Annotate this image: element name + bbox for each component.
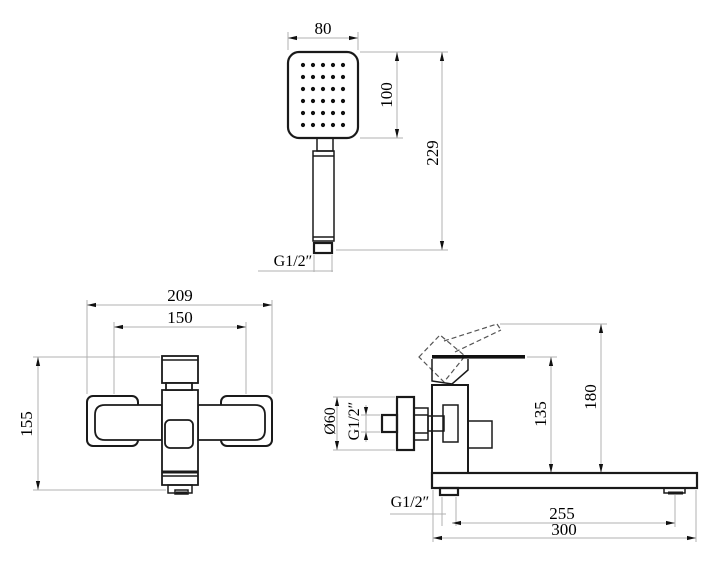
spray-nozzle-dot <box>301 75 305 79</box>
hex-nut <box>414 408 428 440</box>
spray-nozzle-dot <box>301 123 305 127</box>
hose-outlet <box>440 488 458 495</box>
arrowhead <box>549 357 553 366</box>
spray-nozzle-dot <box>341 87 345 91</box>
diverter-button <box>165 420 193 448</box>
arrowhead <box>687 536 696 540</box>
arrowhead <box>335 441 339 450</box>
spray-nozzle-dot <box>341 75 345 79</box>
arrowhead <box>36 481 40 490</box>
spray-nozzle-dot <box>301 87 305 91</box>
spray-nozzle-dot <box>341 111 345 115</box>
spray-nozzle-dot <box>321 87 325 91</box>
technical-drawing-canvas: 80 100 229 G1/2″ <box>0 0 720 567</box>
arrowhead <box>433 536 442 540</box>
spray-nozzle-dot <box>321 111 325 115</box>
side-view: Ø60 G1/2″ 135 180 G1/2″ 255 300 <box>322 324 697 542</box>
spray-nozzle-dot <box>341 123 345 127</box>
front-view-dimensions: 209 150 155 <box>17 286 272 490</box>
dim-overall-length-label: 300 <box>551 520 577 539</box>
arrowhead <box>364 407 368 415</box>
lever-bar-raised <box>444 324 497 341</box>
front-view: 209 150 155 <box>17 286 272 494</box>
spray-nozzle-dot <box>331 87 335 91</box>
arrowhead <box>440 52 444 61</box>
arrowhead <box>114 325 123 329</box>
left-inlet-arm <box>95 405 162 440</box>
spout <box>432 473 697 488</box>
connector-rod <box>428 416 444 431</box>
spray-nozzle-dot <box>321 123 325 127</box>
shower-hose-connector <box>314 243 332 253</box>
arrowhead <box>549 464 553 473</box>
spray-nozzle-dot <box>321 75 325 79</box>
dim-shower-width-label: 80 <box>315 19 332 38</box>
arrowhead <box>237 325 246 329</box>
lever-bar-raised <box>455 330 501 352</box>
dim-front-width-label: 209 <box>167 286 193 305</box>
arrowhead <box>440 241 444 250</box>
arrowhead <box>666 521 675 525</box>
arrowhead <box>335 397 339 406</box>
spray-nozzle-dot <box>311 63 315 67</box>
lever-bar-raised-tip <box>497 324 501 330</box>
spray-nozzle-dot <box>331 99 335 103</box>
mixer-body-side <box>432 385 468 473</box>
inlet-boss <box>443 405 458 442</box>
spray-nozzle-dot <box>341 63 345 67</box>
spray-nozzle-grid <box>301 63 345 127</box>
spray-nozzle-dot <box>311 99 315 103</box>
wall-thread-pipe <box>382 415 397 432</box>
shower-thread-label: G1/2″ <box>274 253 313 270</box>
arrowhead <box>364 432 368 440</box>
spray-nozzle-dot <box>331 111 335 115</box>
wall-flange <box>397 397 414 450</box>
dim-total-height-label: 180 <box>581 384 600 410</box>
arrowhead <box>599 324 603 333</box>
arrowhead <box>599 464 603 473</box>
spray-nozzle-dot <box>311 123 315 127</box>
spray-nozzle-dot <box>311 111 315 115</box>
spray-nozzle-dot <box>341 99 345 103</box>
dim-shower-head-height-label: 100 <box>377 82 396 108</box>
right-inlet-arm <box>198 405 265 440</box>
spray-nozzle-dot <box>311 87 315 91</box>
hand-shower-dimensions: 80 100 229 G1/2″ <box>258 19 448 272</box>
hand-shower-view: 80 100 229 G1/2″ <box>258 19 448 272</box>
arrowhead <box>288 36 297 40</box>
dim-front-height-label: 155 <box>17 411 36 437</box>
spray-nozzle-dot <box>331 123 335 127</box>
dim-body-height-label: 135 <box>531 401 550 427</box>
lever-bar-side <box>432 355 525 359</box>
faucet-technical-drawing: 80 100 229 G1/2″ <box>0 0 720 567</box>
outlet-thread-label: G1/2″ <box>391 494 430 511</box>
lever-base-side <box>432 359 468 384</box>
dim-front-centers-label: 150 <box>167 308 193 327</box>
spray-nozzle-dot <box>301 99 305 103</box>
spray-nozzle-dot <box>331 63 335 67</box>
dim-shower-total-height-label: 229 <box>423 140 442 166</box>
spray-nozzle-dot <box>301 63 305 67</box>
shower-outlet-boss <box>468 421 492 448</box>
spray-nozzle-dot <box>321 99 325 103</box>
arrowhead <box>263 303 272 307</box>
arrowhead <box>395 129 399 138</box>
wall-thread-label: G1/2″ <box>346 402 363 441</box>
shower-handle <box>313 151 334 241</box>
arrowhead <box>349 36 358 40</box>
shower-neck <box>317 138 333 151</box>
handle-neck-front <box>166 383 192 390</box>
spray-nozzle-dot <box>301 111 305 115</box>
spray-nozzle-dot <box>311 75 315 79</box>
spray-nozzle-dot <box>331 75 335 79</box>
spray-nozzle-dot <box>321 63 325 67</box>
arrowhead <box>395 52 399 61</box>
arrowhead <box>36 357 40 366</box>
arrowhead <box>87 303 96 307</box>
dim-flange-diameter-label: Ø60 <box>322 407 339 435</box>
